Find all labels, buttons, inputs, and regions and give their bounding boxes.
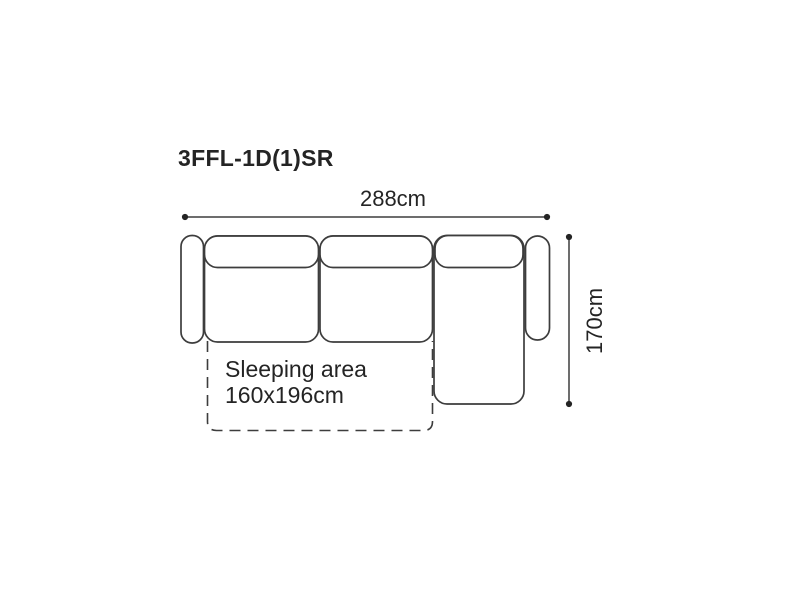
chaise-backrest-cushion-shape [435, 236, 523, 268]
depth-dimension-label: 170cm [582, 288, 607, 354]
width-dimension-label: 288cm [360, 186, 426, 211]
depth-dimension: 170cm [566, 234, 607, 407]
right-armrest-shape [526, 236, 550, 340]
width-dimension: 288cm [182, 186, 550, 220]
width-dimension-endpoint-left [182, 214, 188, 220]
left-armrest-shape [181, 236, 204, 344]
backrest-cushion-2-shape [320, 236, 433, 268]
backrest-cushion-1-shape [205, 236, 319, 268]
width-dimension-endpoint-right [544, 214, 550, 220]
sleeping-area-labels: Sleeping area 160x196cm [225, 356, 367, 408]
depth-dimension-endpoint-bottom [566, 401, 572, 407]
sleeping-area-title: Sleeping area [225, 356, 367, 382]
depth-dimension-endpoint-top [566, 234, 572, 240]
diagram-canvas: 3FFL-1D(1)SR 288cm 170cm [0, 0, 800, 600]
sleeping-area-dimensions: 160x196cm [225, 382, 344, 408]
model-code-title: 3FFL-1D(1)SR [178, 145, 334, 171]
sofa-dimension-diagram: 3FFL-1D(1)SR 288cm 170cm [0, 0, 800, 600]
